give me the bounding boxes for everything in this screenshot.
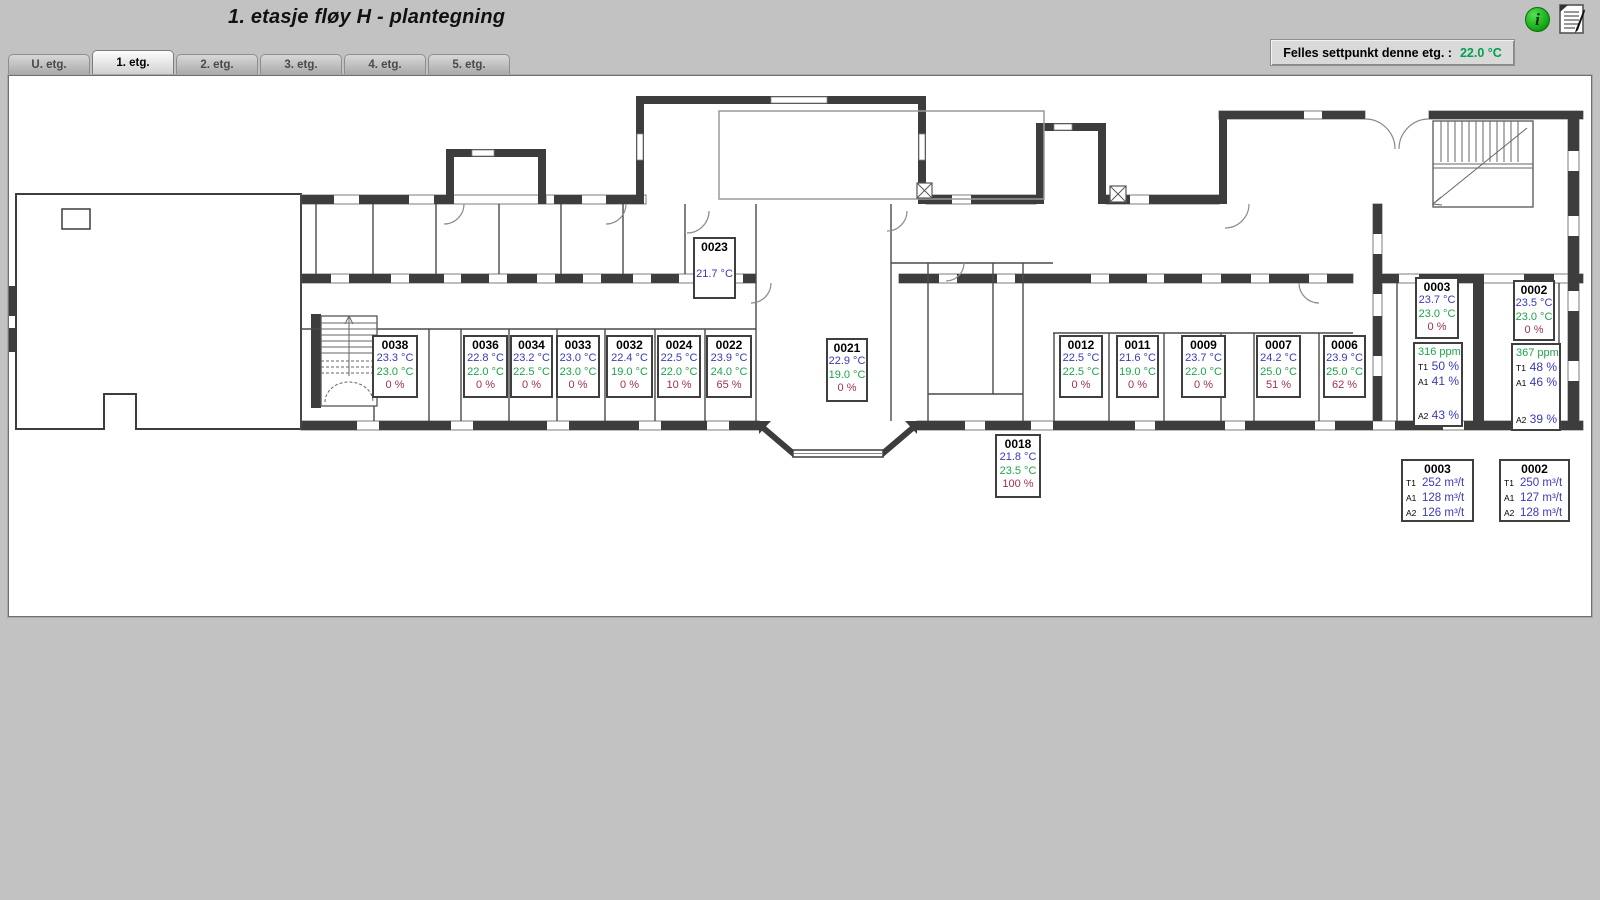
room-measured-temp: 21.8 °C [997, 451, 1039, 465]
room-box-0006[interactable]: 0006 23.9 °C 25.0 °C 62 % [1323, 335, 1366, 398]
header-icons: i [1525, 3, 1586, 35]
flow-row-value: 252 m³/t [1422, 476, 1464, 491]
room-valve-percent: 51 % [1258, 379, 1299, 393]
flow-row-value: 250 m³/t [1520, 476, 1562, 491]
vent-row-value: 46 % [1530, 375, 1557, 389]
room-id: 0012 [1061, 338, 1101, 352]
room-measured-temp: 23.9 °C [1325, 352, 1364, 366]
room-setpoint-temp: 24.0 °C [708, 366, 750, 380]
flow-row-value: 126 m³/t [1422, 506, 1464, 521]
room-setpoint-temp: 22.5 °C [1061, 366, 1101, 380]
room-measured-temp: 23.2 °C [512, 352, 551, 366]
room-measured-temp: 22.5 °C [1061, 352, 1101, 366]
room-measured-temp: 21.6 °C [1118, 352, 1157, 366]
tab-4-etg[interactable]: 4. etg. [344, 54, 426, 75]
room-measured-temp: 23.0 °C [558, 352, 598, 366]
room-measured-temp: 22.5 °C [659, 352, 699, 366]
tab-u-etg[interactable]: U. etg. [8, 54, 90, 75]
flow-row-label: A1 [1504, 491, 1517, 506]
flow-row-label: A2 [1406, 506, 1419, 521]
room-valve-percent: 0 % [465, 379, 506, 393]
vent-row-label: A1 [1516, 376, 1527, 390]
flow-panel-0003[interactable]: 0003 T1252 m³/t A1128 m³/t A2126 m³/t [1401, 459, 1474, 522]
vent-row-label: T1 [1418, 360, 1429, 374]
room-id: 0022 [708, 338, 750, 352]
room-measured-temp: 23.9 °C [708, 352, 750, 366]
room-setpoint-temp: 23.0 °C [558, 366, 598, 380]
room-box-0002[interactable]: 0002 23.5 °C 23.0 °C 0 % [1513, 280, 1555, 341]
co2-value: 316 ppm [1418, 346, 1459, 359]
room-setpoint-temp: 25.0 °C [1258, 366, 1299, 380]
floor-tabs: U. etg. 1. etg. 2. etg. 3. etg. 4. etg. … [8, 51, 510, 75]
flow-row-label: A1 [1406, 491, 1419, 506]
floorplan-canvas: 0038 23.3 °C 23.0 °C 0 % 0036 22.8 °C 22… [8, 75, 1592, 617]
room-id: 0002 [1515, 283, 1553, 297]
room-setpoint-temp: 22.0 °C [659, 366, 699, 380]
room-id: 0009 [1183, 338, 1224, 352]
page-title: 1. etasje fløy H - plantegning [228, 6, 648, 29]
room-setpoint-temp: 19.0 °C [608, 366, 651, 380]
room-setpoint-temp: 22.0 °C [465, 366, 506, 380]
room-id: 0033 [558, 338, 598, 352]
room-setpoint-temp: 19.0 °C [1118, 366, 1157, 380]
common-setpoint-bar: Felles settpunkt denne etg. : 22.0 °C [1270, 39, 1515, 66]
room-valve-percent: 0 % [1183, 379, 1224, 393]
bms-floorplan-screen: { "header": {"title": "1. etasje fløy H … [0, 0, 1600, 900]
room-id: 0036 [465, 338, 506, 352]
room-valve-percent: 0 % [558, 379, 598, 393]
tab-2-etg[interactable]: 2. etg. [176, 54, 258, 75]
flow-panel-0002[interactable]: 0002 T1250 m³/t A1127 m³/t A2128 m³/t [1499, 459, 1570, 522]
room-box-0009[interactable]: 0009 23.7 °C 22.0 °C 0 % [1181, 335, 1226, 398]
flow-row-label: T1 [1504, 476, 1517, 491]
room-setpoint-temp: 25.0 °C [1325, 366, 1364, 380]
room-id: 0038 [374, 338, 416, 352]
room-id: 0024 [659, 338, 699, 352]
flow-room-id: 0002 [1504, 462, 1565, 476]
co2-value: 367 ppm [1516, 347, 1557, 360]
vent-row-label: A1 [1418, 375, 1429, 389]
room-valve-percent: 10 % [659, 379, 699, 393]
room-measured-temp: 23.7 °C [1183, 352, 1224, 366]
room-id: 0034 [512, 338, 551, 352]
info-icon[interactable]: i [1525, 7, 1550, 32]
room-measured-temp: 22.9 °C [828, 355, 866, 369]
flow-row-label: A2 [1504, 506, 1517, 521]
room-valve-percent: 0 % [512, 379, 551, 393]
room-valve-percent: 0 % [1061, 379, 1101, 393]
room-valve-percent: 0 % [1118, 379, 1157, 393]
vent-row-value: 39 % [1530, 412, 1557, 426]
room-setpoint-temp: 22.5 °C [512, 366, 551, 380]
room-valve-percent: 0 % [608, 379, 651, 393]
notepad-icon[interactable] [1558, 3, 1586, 35]
room-setpoint-temp: 23.0 °C [1515, 311, 1553, 325]
vent-row-value: 41 % [1432, 374, 1459, 388]
vent-row-label: T1 [1516, 361, 1527, 375]
room-measured-temp: 22.4 °C [608, 352, 651, 366]
room-id: 0003 [1417, 280, 1457, 294]
room-valve-percent: 0 % [1515, 324, 1553, 338]
flow-row-value: 128 m³/t [1520, 506, 1562, 521]
vent-row-label: A2 [1418, 409, 1429, 423]
room-valve-percent: 100 % [997, 478, 1039, 492]
common-setpoint-label: Felles settpunkt denne etg. : [1283, 46, 1452, 60]
room-measured-temp: 23.5 °C [1515, 297, 1553, 311]
tab-1-etg[interactable]: 1. etg. [92, 50, 174, 75]
room-id: 0021 [828, 341, 866, 355]
room-valve-percent: 0 % [828, 382, 866, 396]
flow-room-id: 0003 [1406, 462, 1469, 476]
room-box-0022[interactable]: 0022 23.9 °C 24.0 °C 65 % [706, 335, 752, 398]
room-id: 0006 [1325, 338, 1364, 352]
room-box-0036[interactable]: 0036 22.8 °C 22.0 °C 0 % [463, 335, 508, 398]
room-valve-percent: 0 % [1417, 321, 1457, 335]
room-setpoint-temp: 22.0 °C [1183, 366, 1224, 380]
tab-3-etg[interactable]: 3. etg. [260, 54, 342, 75]
vent-panel-0003[interactable]: 316 ppm T150 % A141 % A243 % [1413, 342, 1463, 427]
room-id: 0032 [608, 338, 651, 352]
room-box-0021[interactable]: 0021 22.9 °C 19.0 °C 0 % [826, 338, 868, 402]
room-id: 0007 [1258, 338, 1299, 352]
room-box-0023[interactable]: 0023 21.7 °C [693, 237, 736, 299]
vent-row-value: 50 % [1432, 359, 1459, 373]
room-box-0033[interactable]: 0033 23.0 °C 23.0 °C 0 % [556, 335, 600, 398]
room-valve-percent: 0 % [374, 379, 416, 393]
flow-row-label: T1 [1406, 476, 1419, 491]
flow-row-value: 128 m³/t [1422, 491, 1464, 506]
room-id: 0018 [997, 437, 1039, 451]
room-box-0012[interactable]: 0012 22.5 °C 22.5 °C 0 % [1059, 335, 1103, 398]
room-id: 0011 [1118, 338, 1157, 352]
room-id: 0023 [695, 240, 734, 254]
room-measured-temp: 23.3 °C [374, 352, 416, 366]
vent-row-label: A2 [1516, 413, 1527, 427]
room-measured-temp: 21.7 °C [695, 268, 734, 282]
room-measured-temp: 22.8 °C [465, 352, 506, 366]
room-box-0003[interactable]: 0003 23.7 °C 23.0 °C 0 % [1415, 277, 1459, 339]
room-box-0011[interactable]: 0011 21.6 °C 19.0 °C 0 % [1116, 335, 1159, 398]
vent-panel-0002[interactable]: 367 ppm T148 % A146 % A239 % [1511, 343, 1561, 431]
room-box-0007[interactable]: 0007 24.2 °C 25.0 °C 51 % [1256, 335, 1301, 398]
room-box-0032[interactable]: 0032 22.4 °C 19.0 °C 0 % [606, 335, 653, 398]
room-valve-percent: 62 % [1325, 379, 1364, 393]
tab-5-etg[interactable]: 5. etg. [428, 54, 510, 75]
room-box-0018[interactable]: 0018 21.8 °C 23.5 °C 100 % [995, 434, 1041, 498]
room-setpoint-temp: 23.0 °C [1417, 308, 1457, 322]
room-measured-temp: 23.7 °C [1417, 294, 1457, 308]
room-setpoint-temp: 23.0 °C [374, 366, 416, 380]
room-setpoint-temp: 19.0 °C [828, 369, 866, 383]
room-box-0038[interactable]: 0038 23.3 °C 23.0 °C 0 % [372, 335, 418, 398]
vent-row-value: 48 % [1530, 360, 1557, 374]
room-measured-temp: 24.2 °C [1258, 352, 1299, 366]
common-setpoint-value[interactable]: 22.0 °C [1460, 46, 1502, 60]
vent-row-value: 43 % [1432, 408, 1459, 422]
room-box-0034[interactable]: 0034 23.2 °C 22.5 °C 0 % [510, 335, 553, 398]
room-box-0024[interactable]: 0024 22.5 °C 22.0 °C 10 % [657, 335, 701, 398]
room-valve-percent: 65 % [708, 379, 750, 393]
flow-row-value: 127 m³/t [1520, 491, 1562, 506]
room-setpoint-temp: 23.5 °C [997, 465, 1039, 479]
